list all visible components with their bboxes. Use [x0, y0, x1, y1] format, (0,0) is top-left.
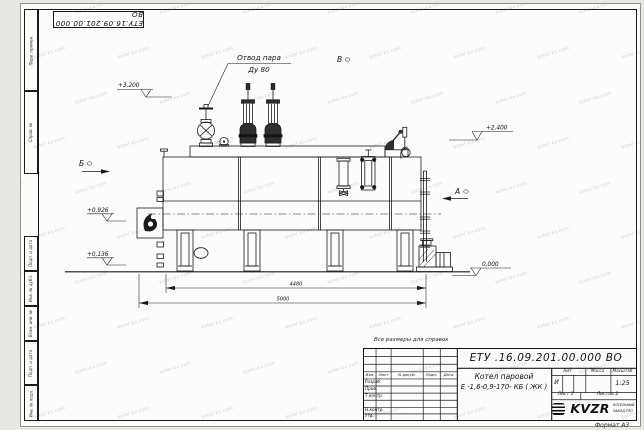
elevation-text-0136: +0,136	[87, 252, 109, 258]
dimension-text-4480: 4480	[290, 282, 303, 288]
water-level-gauge	[337, 158, 350, 195]
elevation-mark-0926	[87, 214, 126, 221]
support-leg	[244, 230, 260, 271]
safety-valve	[264, 84, 282, 147]
view-label-a-text: А	[454, 187, 460, 196]
support-leg	[397, 230, 413, 271]
safety-valve	[239, 84, 257, 147]
elevation-mark-0136	[87, 258, 126, 265]
elevation-text-3200: +3,200	[118, 83, 140, 89]
steam-outlet-label-line2: Ду 80	[247, 65, 270, 74]
boiler-body	[163, 157, 421, 230]
drum-nozzle	[220, 137, 229, 146]
dimension-text-5000: 5000	[277, 297, 290, 303]
view-label-b-text: Б	[79, 159, 84, 168]
handhole-oval	[194, 248, 208, 259]
support-leg	[177, 230, 193, 271]
burner	[137, 208, 163, 238]
elevation-text-0000: 0,000	[482, 262, 499, 268]
feed-pump	[417, 239, 453, 272]
boiler-drawing: Отвод пара Ду 80 Б В А +3,200 +2,400 +0,…	[0, 0, 644, 430]
dimension-5000	[139, 274, 426, 308]
lever-assembly	[385, 127, 411, 158]
view-arrow-b	[82, 162, 110, 174]
view-label-v	[345, 58, 350, 61]
elevation-mark-3200	[117, 90, 172, 98]
elevation-mark-2400	[449, 132, 513, 141]
water-level-gauge	[360, 150, 376, 190]
view-label-v-text: В	[337, 55, 342, 64]
elevation-text-0926: +0,926	[87, 208, 109, 214]
elevation-text-2400: +2,400	[486, 126, 508, 132]
steam-outlet-label-line1: Отвод пара	[237, 53, 281, 62]
steam-drum	[190, 146, 408, 157]
steam-outlet-valve	[198, 105, 215, 147]
support-leg	[327, 230, 343, 271]
